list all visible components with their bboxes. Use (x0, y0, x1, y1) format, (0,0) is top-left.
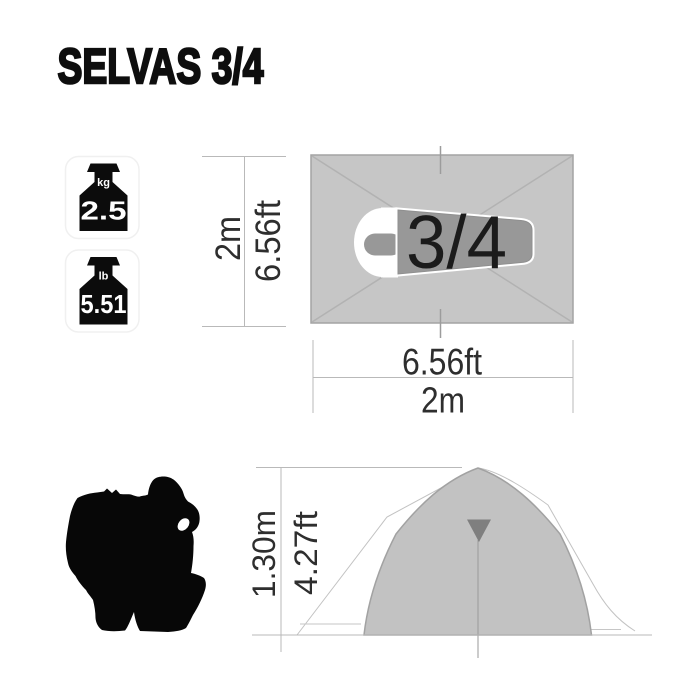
svg-text:3/4: 3/4 (406, 200, 507, 284)
svg-text:2m: 2m (209, 216, 248, 261)
svg-text:1.30m: 1.30m (246, 510, 282, 598)
svg-text:2.5: 2.5 (81, 196, 127, 226)
svg-text:SELVAS 3/4: SELVAS 3/4 (58, 40, 264, 94)
svg-text:2m: 2m (421, 380, 465, 421)
svg-text:4.27ft: 4.27ft (288, 511, 324, 595)
svg-text:kg: kg (97, 177, 110, 189)
svg-text:6.56ft: 6.56ft (402, 342, 483, 383)
svg-text:5.51: 5.51 (81, 289, 127, 319)
svg-text:6.56ft: 6.56ft (249, 200, 288, 282)
svg-text:lb: lb (99, 271, 109, 283)
